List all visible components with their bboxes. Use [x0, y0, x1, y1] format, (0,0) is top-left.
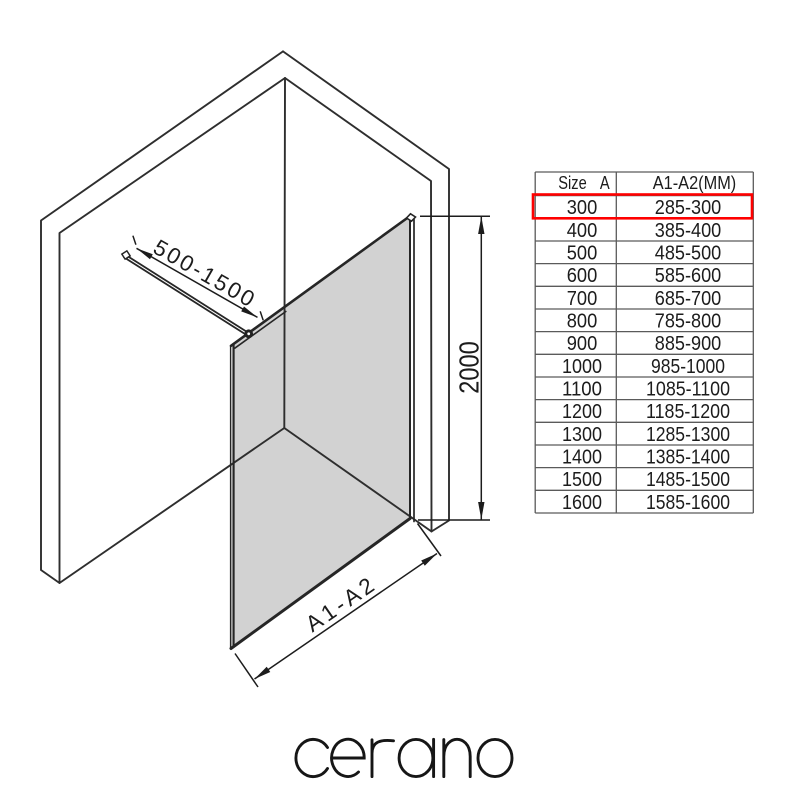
svg-text:1485-1500: 1485-1500 [646, 469, 730, 491]
svg-text:1585-1600: 1585-1600 [646, 492, 730, 514]
svg-text:700: 700 [567, 288, 598, 310]
svg-text:A: A [600, 172, 610, 193]
svg-text:1285-1300: 1285-1300 [646, 424, 730, 446]
svg-text:1600: 1600 [562, 492, 602, 514]
svg-text:785-800: 785-800 [655, 311, 722, 333]
svg-text:2000: 2000 [454, 341, 485, 394]
svg-text:585-600: 585-600 [655, 265, 722, 287]
svg-text:800: 800 [567, 311, 598, 333]
svg-text:1385-1400: 1385-1400 [646, 447, 730, 469]
svg-text:1185-1200: 1185-1200 [646, 401, 730, 423]
svg-text:685-700: 685-700 [655, 288, 722, 310]
svg-text:Size: Size [558, 172, 586, 193]
svg-text:1400: 1400 [562, 447, 602, 469]
svg-text:900: 900 [567, 333, 598, 355]
svg-text:385-400: 385-400 [655, 220, 722, 242]
svg-text:1200: 1200 [562, 401, 602, 423]
svg-text:1300: 1300 [562, 424, 602, 446]
svg-text:600: 600 [567, 265, 598, 287]
svg-text:A1-A2(MM): A1-A2(MM) [653, 172, 737, 193]
svg-text:885-900: 885-900 [655, 333, 722, 355]
svg-text:500: 500 [567, 243, 598, 265]
svg-text:1100: 1100 [562, 379, 602, 401]
svg-text:1500: 1500 [562, 469, 602, 491]
svg-text:285-300: 285-300 [655, 197, 722, 219]
svg-text:485-500: 485-500 [655, 243, 722, 265]
svg-text:400: 400 [567, 220, 598, 242]
svg-text:985-1000: 985-1000 [651, 356, 725, 378]
svg-text:300: 300 [567, 197, 598, 219]
svg-text:1085-1100: 1085-1100 [646, 379, 730, 401]
svg-text:1000: 1000 [562, 356, 602, 378]
